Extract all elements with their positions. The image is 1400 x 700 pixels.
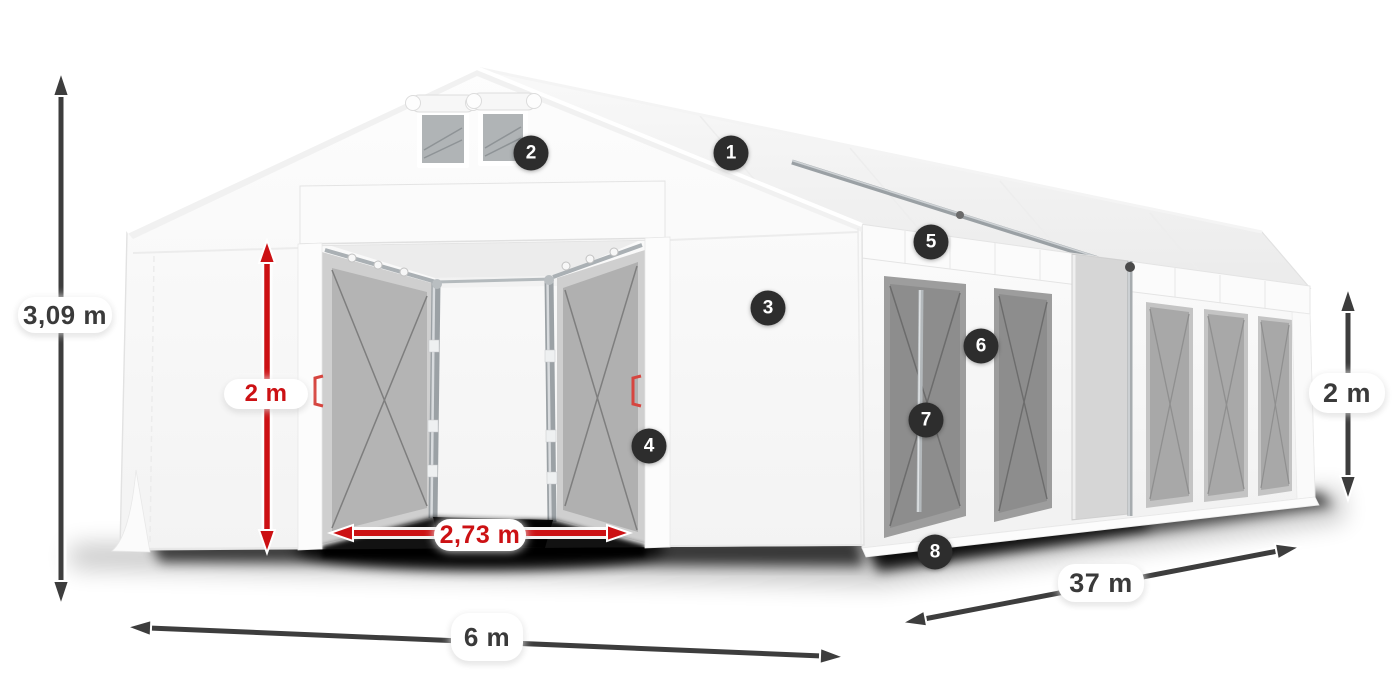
- feature-badge-4[interactable]: 4: [632, 429, 667, 464]
- feature-badge-7[interactable]: 7: [909, 403, 944, 438]
- feature-badge-6[interactable]: 6: [964, 329, 999, 364]
- tent-illustration: [0, 0, 1400, 700]
- product-diagram: 3,09 m 2 m 2,73 m 6 m 37 m 2 m 1 2 3 4 5…: [0, 0, 1400, 700]
- rolled-cover-icon: [467, 93, 542, 110]
- door-column-right: [645, 237, 670, 548]
- arrow-total-height: [53, 72, 69, 605]
- feature-badge-5[interactable]: 5: [914, 225, 949, 260]
- dimension-label-total-height: 3,09 m: [18, 297, 112, 333]
- side-open-bay-2: [994, 288, 1052, 522]
- dimension-label-width: 6 m: [451, 613, 523, 661]
- dimension-label-side-height: 2 m: [1309, 373, 1385, 413]
- interior-mesh-left: [322, 252, 435, 544]
- side-window-bay-3: [1146, 302, 1193, 508]
- feature-badge-3[interactable]: 3: [751, 291, 786, 326]
- side-window-bay-4: [1204, 309, 1248, 502]
- feature-badge-8[interactable]: 8: [918, 535, 953, 570]
- dimension-label-entrance-height: 2 m: [224, 379, 308, 409]
- side-door-panel: [1072, 254, 1135, 520]
- door-header-band: [300, 181, 665, 246]
- dimension-label-length: 37 m: [1058, 564, 1144, 602]
- feature-badge-2[interactable]: 2: [514, 136, 549, 171]
- side-window-bay-5: [1258, 316, 1292, 496]
- feature-badge-1[interactable]: 1: [714, 136, 749, 171]
- dimension-label-entrance-width: 2,73 m: [434, 519, 526, 551]
